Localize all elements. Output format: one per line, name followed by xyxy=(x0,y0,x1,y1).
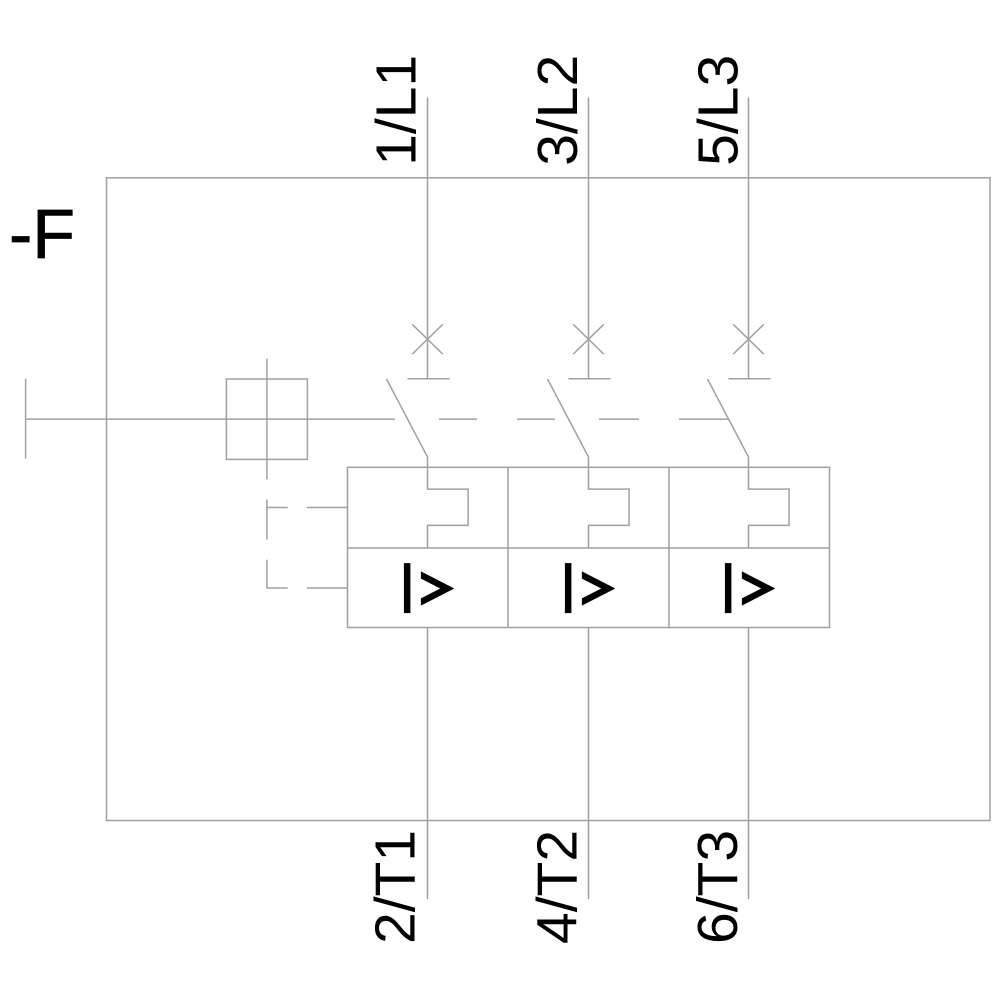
svg-text:6/T3: 6/T3 xyxy=(686,830,750,944)
svg-text:1/L1: 1/L1 xyxy=(365,55,429,166)
svg-text:2/T1: 2/T1 xyxy=(363,830,427,944)
svg-text:5/L3: 5/L3 xyxy=(687,55,751,166)
svg-text:3/L2: 3/L2 xyxy=(526,55,590,166)
svg-text:4/T2: 4/T2 xyxy=(526,830,590,944)
svg-text:-F: -F xyxy=(9,195,75,273)
